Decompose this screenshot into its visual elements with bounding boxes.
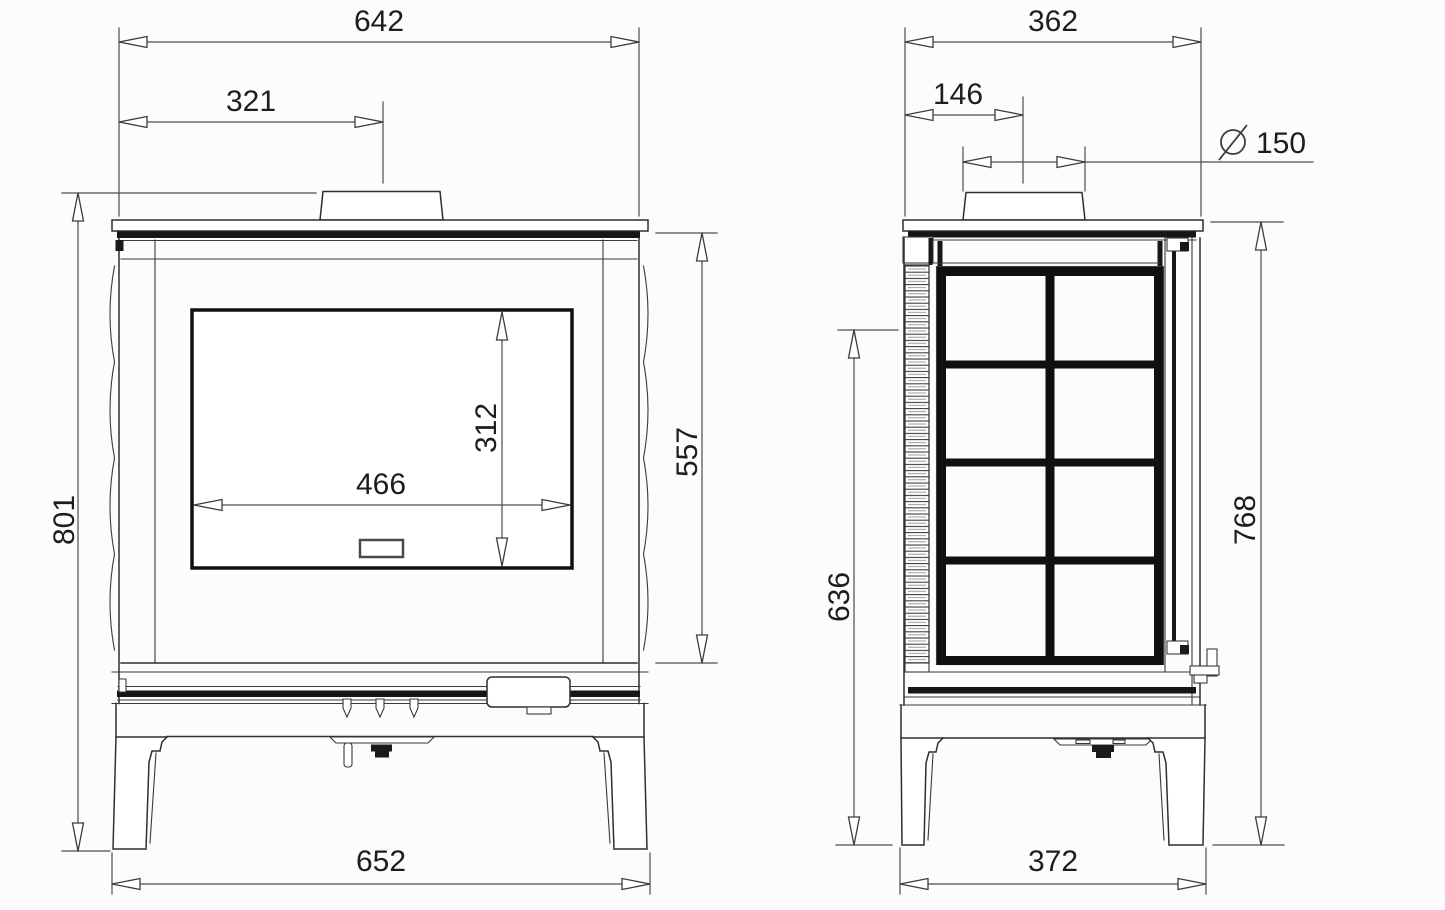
dim-label-side-flue-offset: 146 [933, 78, 983, 111]
side-door-frame [1165, 238, 1200, 705]
dim-front-base-width: 652 [112, 845, 650, 894]
dim-label-front-body-height: 557 [671, 427, 704, 477]
dim-side-panel-height: 636 [823, 330, 898, 845]
dim-label-side-height-to-top: 768 [1229, 495, 1262, 545]
air-control-slot [360, 540, 403, 557]
grate-knob [371, 745, 392, 752]
side-flue-collar [963, 193, 1085, 221]
dim-label-glass-height: 312 [470, 403, 503, 453]
dim-label-side-panel-height: 636 [823, 572, 856, 622]
dim-label-flue-diameter: 150 [1256, 127, 1306, 160]
stove-dimension-drawing: 642 321 801 557 [0, 0, 1445, 910]
dim-front-top-width: 642 [119, 5, 639, 216]
side-view: 362 146 150 636 [823, 5, 1313, 894]
front-glass-window [192, 310, 572, 568]
side-top-plate [903, 220, 1203, 240]
front-flue-collar [320, 192, 443, 221]
dim-label-front-flue-offset: 321 [226, 85, 276, 118]
dim-side-flue-offset: 146 [905, 78, 1023, 183]
front-latch-prongs [343, 699, 418, 717]
side-door-handle [1190, 649, 1219, 683]
front-base [113, 704, 647, 850]
front-left-leg [113, 737, 167, 849]
grate-bracket [330, 737, 434, 743]
side-left-leg [901, 738, 943, 845]
front-door-handle [487, 677, 570, 714]
side-grate-knob [1092, 745, 1114, 752]
side-lower-bands [900, 672, 1206, 705]
front-right-leg [593, 737, 647, 849]
side-grate-bracket [1054, 739, 1152, 745]
dim-label-glass-width: 466 [356, 468, 406, 501]
grate-pin [344, 743, 352, 767]
side-tile-grid [937, 267, 1164, 665]
front-door-hinge-mark [116, 240, 124, 251]
grate-knob-base [375, 752, 389, 758]
side-rib-fins [904, 238, 929, 705]
front-view: 642 321 801 557 [48, 5, 717, 894]
dim-front-body-height: 557 [656, 233, 717, 663]
front-right-scalloped-edge [644, 266, 649, 650]
dim-side-height-to-top: 768 [1211, 222, 1284, 845]
dim-side-base-depth: 372 [900, 845, 1206, 894]
drawing-canvas: 642 321 801 557 [0, 0, 1445, 910]
front-left-scalloped-edge [110, 266, 115, 650]
diameter-symbol [1219, 125, 1247, 160]
front-left-notch [119, 679, 126, 692]
side-right-leg [1148, 738, 1205, 845]
dim-label-front-top-width: 642 [354, 5, 404, 38]
side-base [901, 705, 1205, 845]
dim-label-side-base-depth: 372 [1028, 845, 1078, 878]
front-top-plate [112, 220, 648, 241]
dim-label-side-top-depth: 362 [1028, 5, 1078, 38]
dim-label-front-base-width: 652 [356, 845, 406, 878]
dim-flue-diameter: 150 [963, 125, 1313, 191]
dim-label-front-total-height: 801 [48, 495, 81, 545]
dim-front-flue-offset: 321 [119, 85, 383, 183]
